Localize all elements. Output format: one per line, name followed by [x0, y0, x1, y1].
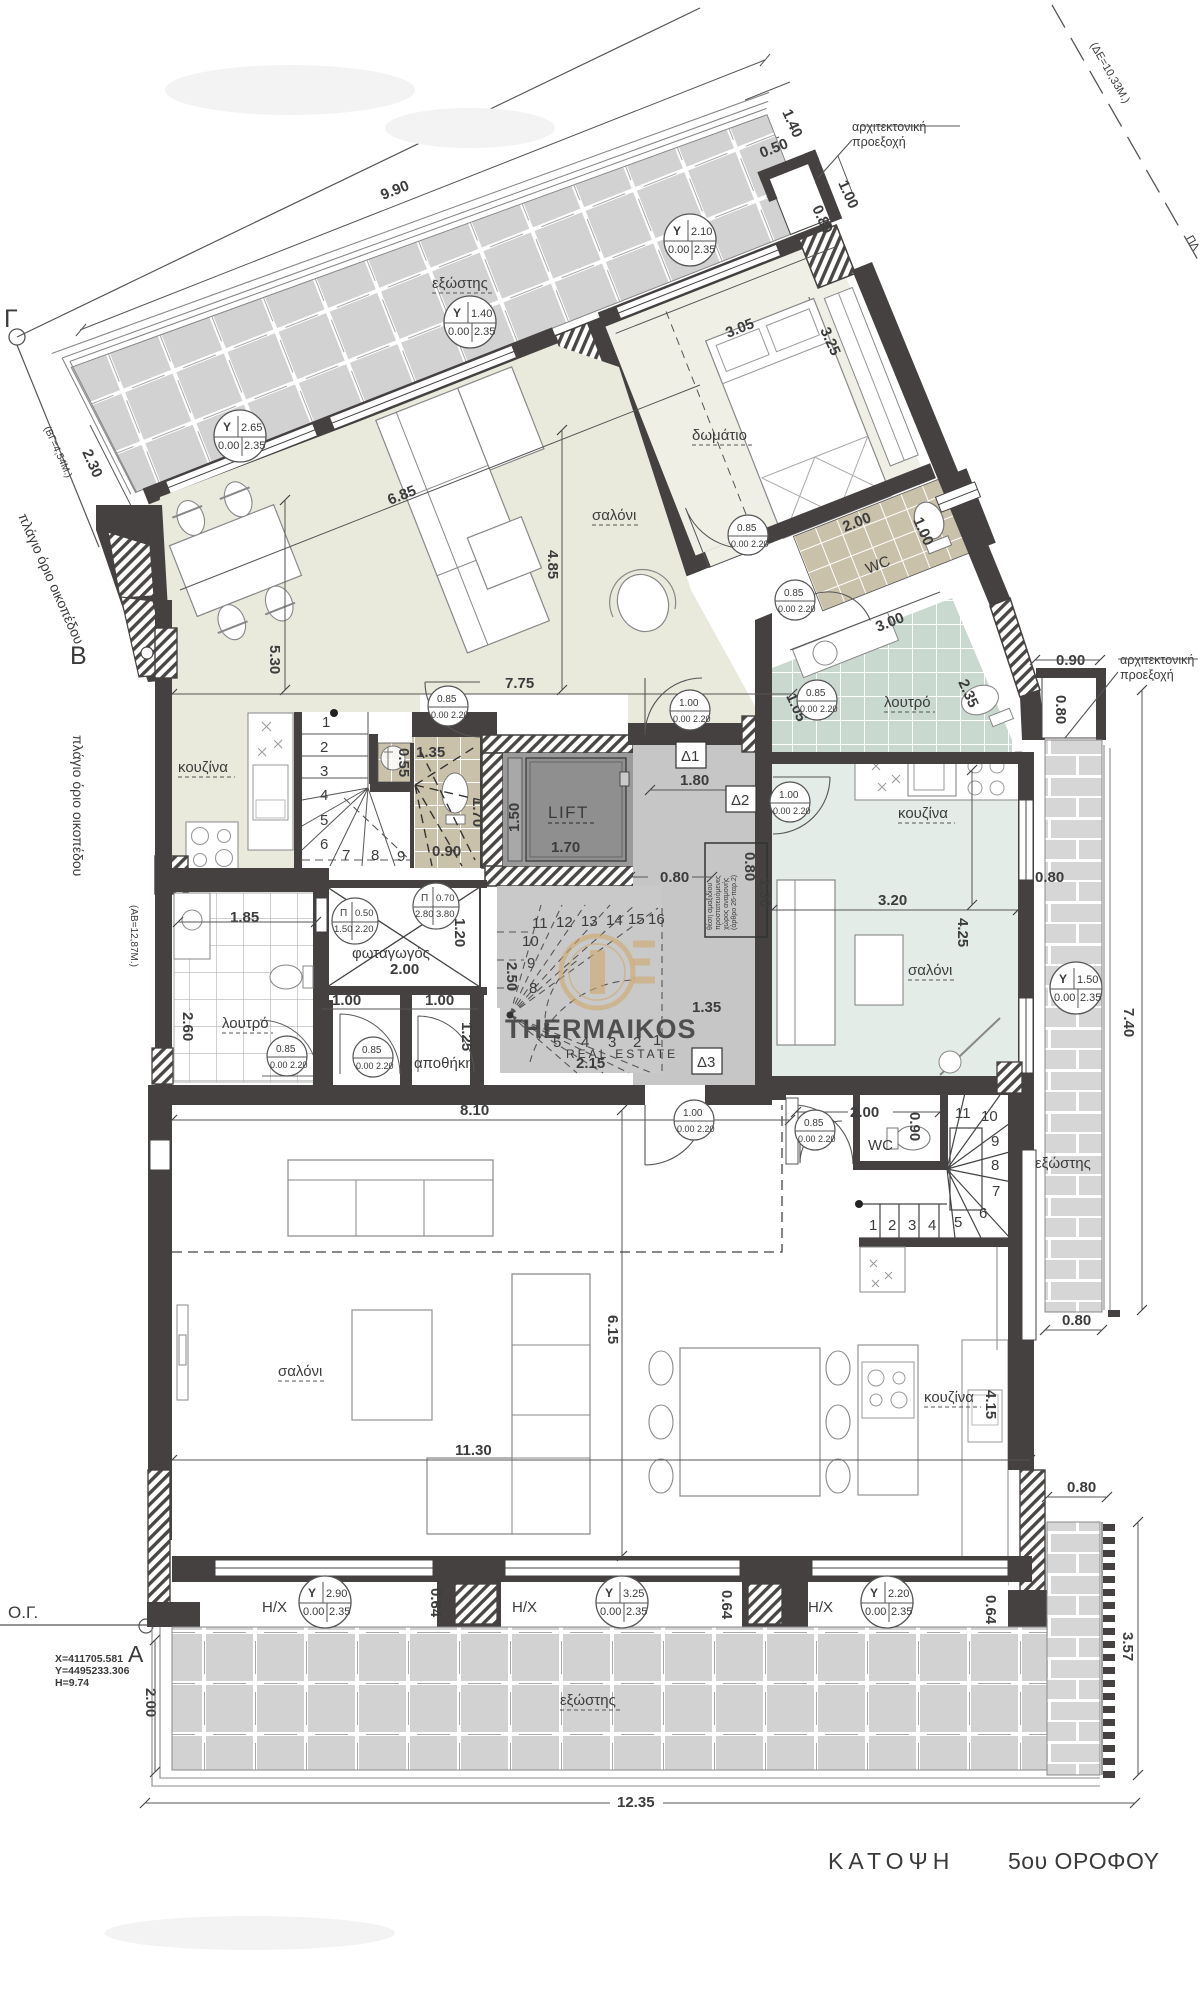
svg-text:2.35: 2.35 [1080, 992, 1101, 1004]
svg-text:1.80: 1.80 [680, 772, 709, 789]
svg-text:REAL ESTATE: REAL ESTATE [566, 1047, 678, 1061]
svg-text:H/X: H/X [512, 1599, 537, 1616]
svg-text:1.00: 1.00 [683, 1108, 703, 1119]
svg-text:5: 5 [954, 1214, 962, 1231]
svg-text:0.00 2.20: 0.00 2.20 [798, 1134, 836, 1144]
svg-text:αρχιτεκτονική: αρχιτεκτονική [1120, 653, 1194, 667]
svg-text:2.20: 2.20 [888, 1588, 909, 1600]
svg-text:5.30: 5.30 [266, 645, 283, 674]
svg-text:2.35: 2.35 [626, 1606, 647, 1618]
svg-text:10: 10 [522, 933, 539, 950]
svg-text:6: 6 [320, 836, 328, 853]
svg-text:2.00: 2.00 [850, 1104, 879, 1121]
svg-text:1.50: 1.50 [334, 924, 353, 935]
svg-text:4.25: 4.25 [954, 918, 971, 947]
svg-text:8.10: 8.10 [460, 1102, 489, 1119]
svg-text:0.00: 0.00 [668, 244, 689, 256]
svg-text:16: 16 [648, 911, 665, 928]
svg-text:7: 7 [992, 1183, 1000, 1200]
svg-text:0.90: 0.90 [432, 843, 461, 860]
svg-text:Π: Π [340, 908, 347, 919]
svg-text:1.20: 1.20 [451, 918, 468, 947]
svg-text:4: 4 [928, 1217, 936, 1234]
svg-text:0.00 2.20: 0.00 2.20 [356, 1061, 394, 1071]
svg-text:15: 15 [628, 911, 645, 928]
svg-text:εξώστης: εξώστης [560, 1692, 616, 1709]
svg-text:2: 2 [888, 1217, 896, 1234]
svg-text:9: 9 [527, 955, 535, 972]
svg-text:H=9.74: H=9.74 [55, 1677, 89, 1689]
svg-text:0.70: 0.70 [436, 893, 455, 904]
svg-text:Δ2: Δ2 [731, 792, 749, 809]
svg-text:0.64: 0.64 [427, 1588, 444, 1618]
svg-text:0.85: 0.85 [276, 1044, 296, 1055]
svg-text:Y: Y [453, 306, 461, 320]
svg-text:1.85: 1.85 [230, 909, 259, 926]
svg-text:3.25: 3.25 [623, 1588, 644, 1600]
svg-text:THERMAIKOS: THERMAIKOS [505, 1014, 697, 1044]
svg-text:σαλόνι: σαλόνι [908, 962, 952, 979]
svg-text:13: 13 [581, 913, 598, 930]
svg-text:Y: Y [673, 224, 681, 238]
svg-text:1.35: 1.35 [416, 744, 445, 761]
svg-text:1.00: 1.00 [679, 698, 699, 709]
svg-text:0.90: 0.90 [906, 1112, 923, 1141]
svg-text:ΚΑΤΟΨΗ: ΚΑΤΟΨΗ [828, 1848, 954, 1874]
svg-text:Y=4495233.306: Y=4495233.306 [55, 1665, 130, 1677]
svg-text:0.80: 0.80 [741, 852, 758, 881]
svg-text:0.00: 0.00 [303, 1606, 324, 1618]
svg-text:χώρος αναμονής: χώρος αναμονής [722, 877, 730, 930]
svg-text:8: 8 [529, 980, 537, 997]
svg-text:2.10: 2.10 [691, 226, 712, 238]
svg-text:11.30: 11.30 [455, 1442, 492, 1459]
svg-text:1.30: 1.30 [756, 878, 773, 907]
svg-text:2.35: 2.35 [891, 1606, 912, 1618]
svg-text:11: 11 [955, 1105, 971, 1122]
svg-text:0.00: 0.00 [218, 440, 239, 452]
svg-text:0.85: 0.85 [804, 1118, 824, 1129]
svg-text:0.64: 0.64 [982, 1595, 999, 1625]
svg-text:εξώστης: εξώστης [432, 275, 488, 292]
svg-text:λουτρό: λουτρό [222, 1015, 269, 1032]
svg-text:1.00: 1.00 [779, 790, 799, 801]
svg-text:3: 3 [320, 763, 328, 780]
svg-text:4.85: 4.85 [544, 550, 561, 579]
svg-text:0.64: 0.64 [718, 1590, 735, 1620]
svg-text:Α: Α [128, 1641, 144, 1667]
svg-text:Y: Y [1059, 972, 1067, 986]
svg-text:0.00: 0.00 [448, 326, 469, 338]
svg-text:0.80: 0.80 [1062, 1312, 1091, 1329]
svg-text:θέση αμαξιδίου: θέση αμαξιδίου [706, 883, 714, 930]
svg-text:2.80: 2.80 [415, 909, 434, 920]
svg-text:0.00: 0.00 [865, 1606, 886, 1618]
svg-text:5: 5 [320, 812, 328, 829]
svg-text:3: 3 [908, 1217, 916, 1234]
svg-text:(ΑΒ=12,87Μ.): (ΑΒ=12,87Μ.) [128, 905, 139, 967]
svg-text:προστατευόμενες: προστατευόμενες [714, 875, 722, 930]
svg-text:(άρθρο 26-παρ.2): (άρθρο 26-παρ.2) [730, 875, 738, 930]
svg-text:0.80: 0.80 [660, 869, 689, 886]
svg-text:9: 9 [991, 1133, 999, 1150]
svg-text:0.55: 0.55 [395, 748, 412, 777]
svg-text:7.40: 7.40 [1120, 1008, 1137, 1037]
svg-text:προεξοχή: προεξοχή [852, 135, 906, 149]
svg-text:0.00: 0.00 [1054, 992, 1075, 1004]
svg-text:Δ1: Δ1 [681, 748, 699, 765]
svg-text:κουζίνα: κουζίνα [178, 759, 228, 776]
svg-text:7.75: 7.75 [505, 675, 534, 692]
svg-text:πλάγιο όριο οικοπέδου: πλάγιο όριο οικοπέδου [70, 735, 86, 876]
svg-text:αποθήκη: αποθήκη [414, 1055, 474, 1072]
svg-text:1: 1 [869, 1217, 877, 1234]
svg-text:2.00: 2.00 [142, 1688, 159, 1717]
svg-text:0.00 2.20: 0.00 2.20 [270, 1060, 308, 1070]
svg-text:2.20: 2.20 [355, 924, 374, 935]
svg-text:H/X: H/X [808, 1599, 833, 1616]
svg-text:2.35: 2.35 [694, 244, 715, 256]
svg-text:4.15: 4.15 [982, 1390, 999, 1419]
svg-text:0.00 2.20: 0.00 2.20 [778, 604, 816, 614]
svg-text:1.00: 1.00 [425, 992, 454, 1009]
svg-text:3.57: 3.57 [1119, 1632, 1136, 1661]
svg-text:0.00 2.20: 0.00 2.20 [731, 539, 769, 549]
svg-text:Π: Π [421, 893, 428, 904]
svg-text:1.00: 1.00 [332, 992, 361, 1009]
svg-text:1.40: 1.40 [471, 308, 492, 320]
svg-text:3.20: 3.20 [878, 892, 907, 909]
svg-text:8: 8 [371, 847, 379, 864]
svg-text:Y: Y [223, 420, 231, 434]
svg-text:2.50: 2.50 [503, 962, 520, 991]
svg-text:0.00 2.20: 0.00 2.20 [431, 710, 469, 720]
svg-text:5ου ΟΡΟΦΟΥ: 5ου ΟΡΟΦΟΥ [1008, 1848, 1160, 1874]
svg-text:7: 7 [342, 847, 350, 864]
svg-text:0.00 2.20: 0.00 2.20 [673, 714, 711, 724]
svg-text:H/X: H/X [262, 1599, 287, 1616]
svg-text:6: 6 [979, 1205, 987, 1222]
svg-text:0.85: 0.85 [806, 688, 826, 699]
svg-text:Y: Y [308, 1586, 316, 1600]
svg-text:2.35: 2.35 [244, 440, 265, 452]
svg-text:9: 9 [397, 848, 405, 865]
svg-text:LIFT: LIFT [548, 803, 589, 822]
svg-text:2.35: 2.35 [329, 1606, 350, 1618]
svg-text:εξώστης: εξώστης [1035, 1155, 1091, 1172]
svg-text:12.35: 12.35 [617, 1794, 655, 1811]
svg-text:0.85: 0.85 [784, 588, 804, 599]
svg-text:4: 4 [320, 787, 328, 804]
svg-text:1.50: 1.50 [1077, 974, 1098, 986]
svg-text:προεξοχή: προεξοχή [1120, 668, 1174, 682]
svg-text:Ο.Γ.: Ο.Γ. [8, 1603, 38, 1622]
svg-text:2.35: 2.35 [474, 326, 495, 338]
svg-text:1.25: 1.25 [458, 1022, 475, 1051]
svg-text:2.00: 2.00 [390, 961, 419, 978]
svg-text:1.50: 1.50 [506, 803, 523, 832]
svg-text:Β: Β [70, 642, 87, 670]
svg-text:δωμάτιο: δωμάτιο [692, 427, 747, 444]
svg-text:3.80: 3.80 [436, 909, 455, 920]
svg-text:2: 2 [320, 739, 328, 756]
svg-text:0.00 2.20: 0.00 2.20 [773, 806, 811, 816]
svg-text:12: 12 [556, 914, 573, 931]
svg-text:λουτρό: λουτρό [884, 694, 931, 711]
svg-text:0.00 2.20: 0.00 2.20 [677, 1124, 715, 1134]
svg-text:1.70: 1.70 [551, 839, 580, 856]
svg-text:8: 8 [991, 1157, 999, 1174]
svg-text:1: 1 [322, 714, 330, 731]
svg-text:WC: WC [868, 1137, 893, 1154]
svg-text:Y: Y [605, 1586, 613, 1600]
svg-text:αρχιτεκτονική: αρχιτεκτονική [852, 120, 926, 134]
svg-text:Y: Y [870, 1586, 878, 1600]
svg-text:0.85: 0.85 [437, 694, 457, 705]
svg-text:0.85: 0.85 [737, 523, 757, 534]
svg-text:φωταγωγός: φωταγωγός [352, 945, 430, 962]
svg-text:κουζίνα: κουζίνα [924, 1389, 974, 1406]
svg-text:Γ: Γ [4, 305, 18, 333]
svg-text:6.15: 6.15 [604, 1315, 621, 1344]
svg-text:σαλόνι: σαλόνι [278, 1363, 322, 1380]
svg-text:0.80: 0.80 [1067, 1479, 1096, 1496]
svg-text:2.90: 2.90 [326, 1588, 347, 1600]
svg-text:10: 10 [981, 1108, 998, 1125]
svg-text:14: 14 [606, 912, 623, 929]
svg-text:0.00: 0.00 [600, 1606, 621, 1618]
svg-text:Δ3: Δ3 [697, 1054, 715, 1071]
svg-text:0.00 2.20: 0.00 2.20 [800, 704, 838, 714]
svg-text:2.65: 2.65 [241, 422, 262, 434]
svg-text:0.50: 0.50 [355, 908, 374, 919]
svg-text:0.80: 0.80 [1052, 695, 1069, 724]
svg-text:11: 11 [532, 915, 548, 932]
svg-text:2.60: 2.60 [179, 1012, 196, 1041]
svg-text:0.85: 0.85 [362, 1045, 382, 1056]
svg-text:X=411705.581: X=411705.581 [55, 1653, 123, 1665]
svg-text:κουζίνα: κουζίνα [898, 805, 948, 822]
svg-text:0.80: 0.80 [1035, 869, 1064, 886]
svg-text:σαλόνι: σαλόνι [592, 507, 636, 524]
